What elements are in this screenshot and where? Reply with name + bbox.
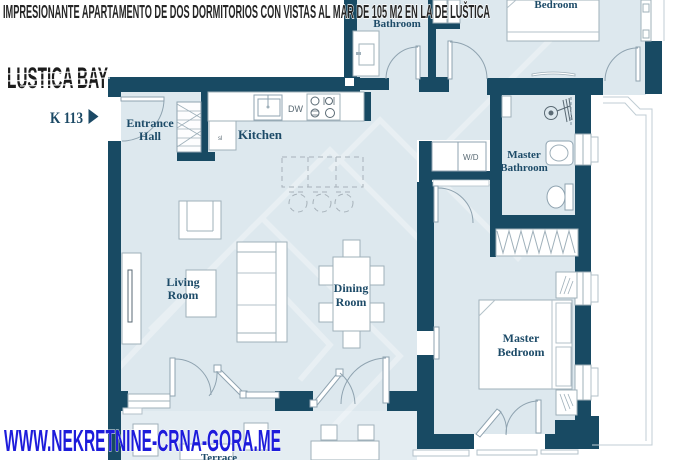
svg-text:Living: Living bbox=[166, 275, 199, 289]
svg-text:Dining: Dining bbox=[334, 281, 369, 295]
svg-text:Master: Master bbox=[503, 331, 540, 345]
svg-text:W/D: W/D bbox=[463, 153, 479, 162]
svg-text:Master: Master bbox=[507, 149, 541, 161]
svg-text:DW: DW bbox=[288, 104, 303, 114]
svg-text:sl: sl bbox=[218, 136, 222, 142]
svg-text:Bedroom: Bedroom bbox=[497, 345, 544, 359]
svg-text:Hall: Hall bbox=[139, 129, 162, 143]
svg-text:Entrance: Entrance bbox=[126, 116, 174, 130]
svg-text:Bathroom: Bathroom bbox=[500, 162, 547, 174]
svg-text:K 113: K 113 bbox=[50, 110, 83, 127]
svg-text:Room: Room bbox=[336, 295, 367, 309]
svg-text:Kitchen: Kitchen bbox=[238, 127, 283, 142]
svg-text:IMPRESIONANTE APARTAMENTO DE D: IMPRESIONANTE APARTAMENTO DE DOS DORMITO… bbox=[3, 1, 490, 22]
svg-text:Bedroom: Bedroom bbox=[534, 0, 577, 11]
svg-text:Room: Room bbox=[168, 288, 199, 302]
svg-text:WWW.NEKRETNINE-CRNA-GORA.ME: WWW.NEKRETNINE-CRNA-GORA.ME bbox=[4, 423, 281, 458]
